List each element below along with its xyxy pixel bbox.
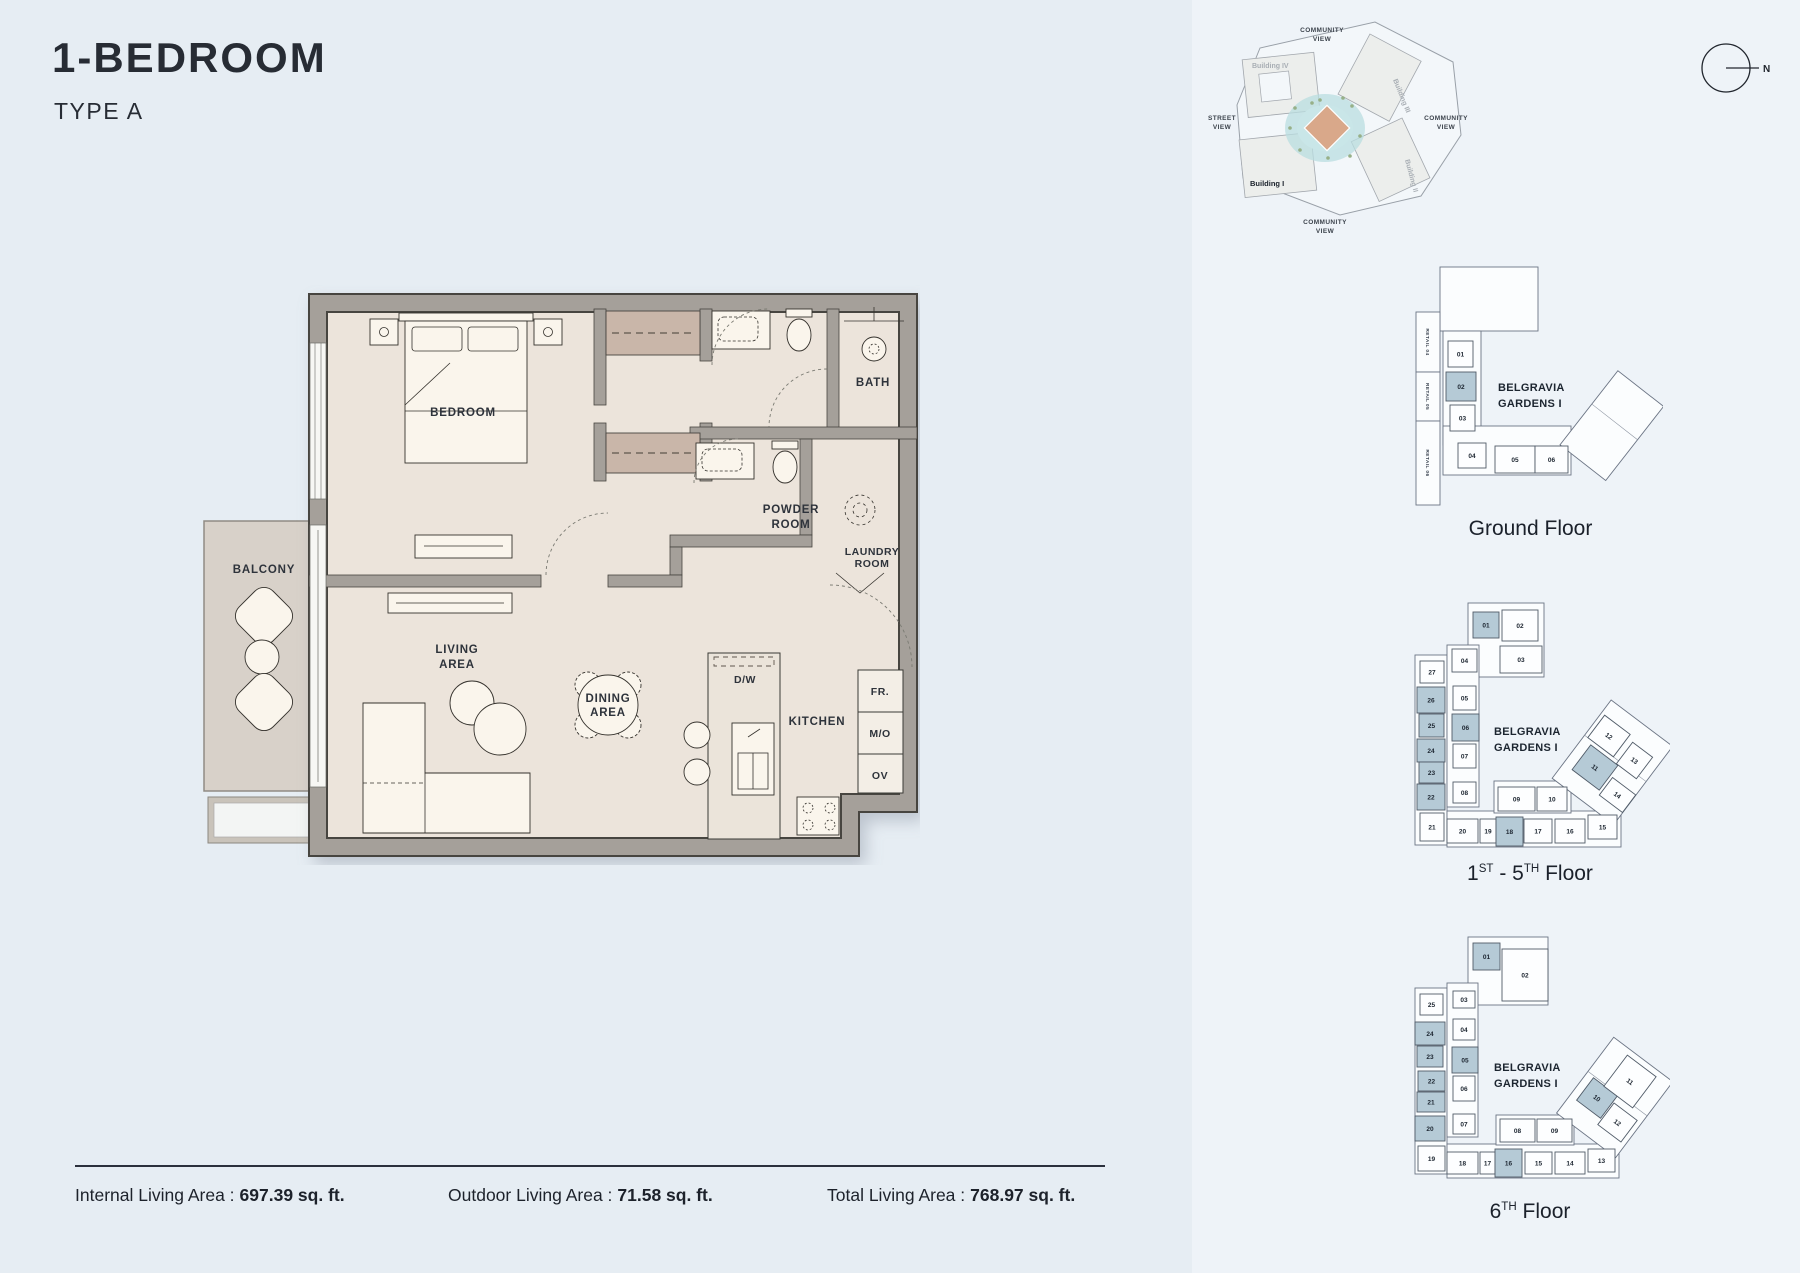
bath-label: BATH xyxy=(856,377,890,389)
keyplan-unit-number: 02 xyxy=(1457,384,1465,391)
internal-area-stat: Internal Living Area :697.39 sq. ft. xyxy=(75,1185,345,1206)
site-plan: Building IV Building III Building II Bui… xyxy=(1200,8,1480,248)
vanity-room-fixtures xyxy=(712,309,812,351)
keyplan-caption-part: TH xyxy=(1524,863,1539,875)
keyplan-1st-5th-caption: 1ST - 5TH Floor xyxy=(1390,862,1670,886)
powder-label-2: ROOM xyxy=(772,519,811,531)
keyplan-ground-caption: Ground Floor xyxy=(1398,517,1663,541)
keyplan-unit-number: 23 xyxy=(1428,770,1436,777)
keyplan-unit-number: 03 xyxy=(1459,415,1467,422)
keyplan-1st-5th-floor: 0102030405060708272625242322212019181716… xyxy=(1390,585,1670,885)
keyplan-caption-part: Floor xyxy=(1539,862,1593,885)
keyplan-unit-number: 25 xyxy=(1428,1002,1436,1009)
windows xyxy=(310,343,326,787)
kitchen-label: KITCHEN xyxy=(789,716,846,728)
keyplan-unit-number: 26 xyxy=(1427,697,1435,704)
keyplan-unit-number: 07 xyxy=(1461,753,1469,760)
keyplan-unit-number: 19 xyxy=(1484,828,1492,835)
media-console xyxy=(388,593,512,613)
laundry-label-2: ROOM xyxy=(855,558,890,570)
keyplan-unit-number: 23 xyxy=(1426,1054,1434,1061)
floorplan: BEDROOM BATH POWDER ROOM LAUNDRY ROOM BA… xyxy=(200,285,920,865)
keyplan-unit-number: 04 xyxy=(1460,1027,1468,1034)
living-label-1: LIVING xyxy=(435,644,478,656)
keyplan-unit-number: 01 xyxy=(1483,954,1491,961)
outdoor-area-value: 71.58 sq. ft. xyxy=(617,1185,712,1205)
keyplan-unit-number: 09 xyxy=(1513,796,1521,803)
keyplan-unit-number: 03 xyxy=(1460,997,1468,1004)
keyplan-unit-number: 06 xyxy=(1548,457,1556,464)
balcony-label: BALCONY xyxy=(233,564,295,576)
oven-label: OV xyxy=(872,770,888,782)
keyplan-unit-number: 08 xyxy=(1514,1128,1522,1135)
community-view-bottom-2: VIEW xyxy=(1316,228,1335,235)
keyplan-unit-number: 02 xyxy=(1521,972,1529,979)
community-view-top-2: VIEW xyxy=(1313,36,1332,43)
keyplan-unit-number: 22 xyxy=(1427,794,1435,801)
keyplan-unit-number: 20 xyxy=(1459,828,1467,835)
compass-north-label: N xyxy=(1763,64,1770,75)
building-i-label: Building I xyxy=(1250,179,1284,188)
keyplan-unit-number: 05 xyxy=(1461,1057,1469,1064)
keyplan-building-name: BELGRAVIA xyxy=(1498,382,1565,394)
keyplan-building-name: BELGRAVIA xyxy=(1494,1062,1561,1074)
street-view-label-2: VIEW xyxy=(1213,124,1232,131)
retail-cell-label: RETAIL 05 xyxy=(1424,383,1430,410)
keyplan-caption-part: 1 xyxy=(1467,862,1479,885)
keyplan-unit-number: 06 xyxy=(1462,725,1470,732)
page-subtitle: TYPE A xyxy=(54,98,144,125)
keyplan-caption-part: 6 xyxy=(1490,1200,1502,1223)
keyplan-unit-number: 15 xyxy=(1599,824,1607,831)
living-label-2: AREA xyxy=(439,659,475,671)
total-area-label: Total Living Area : xyxy=(827,1185,965,1205)
bedroom-label: BEDROOM xyxy=(430,407,496,419)
retail-cell-label: RETAIL 04 xyxy=(1424,328,1430,355)
keyplan-caption-part: Ground Floor xyxy=(1469,517,1593,540)
keyplan-6th-caption: 6TH Floor xyxy=(1390,1200,1670,1224)
keyplan-building-name: GARDENS I xyxy=(1494,742,1558,754)
keyplan-unit-number: 20 xyxy=(1426,1126,1434,1133)
keyplan-unit-number: 05 xyxy=(1461,695,1469,702)
dishwasher-label: D/W xyxy=(734,674,756,686)
page-title: 1-BEDROOM xyxy=(52,34,327,82)
outdoor-area-stat: Outdoor Living Area :71.58 sq. ft. xyxy=(448,1185,713,1206)
keyplan-unit-number: 21 xyxy=(1428,824,1436,831)
keyplan-wing xyxy=(1560,371,1663,481)
dining-label-1: DINING xyxy=(585,693,630,705)
keyplan-unit-number: 22 xyxy=(1428,1078,1436,1085)
building-iv-label: Building IV xyxy=(1252,63,1289,70)
keyplan-unit-number: 05 xyxy=(1511,457,1519,464)
dining-label-2: AREA xyxy=(590,707,626,719)
keyplan-unit-number: 04 xyxy=(1468,453,1476,460)
keyplan-unit-number: 16 xyxy=(1566,828,1574,835)
stove xyxy=(797,797,839,835)
keyplan-caption-part: - 5 xyxy=(1494,862,1524,885)
keyplan-unit-number: 27 xyxy=(1428,669,1436,676)
microwave-label: M/O xyxy=(869,728,890,740)
keyplan-unit-number: 07 xyxy=(1460,1121,1468,1128)
keyplan-unit-number: 18 xyxy=(1506,829,1514,836)
keyplan-unit-number: 17 xyxy=(1484,1160,1492,1167)
keyplan-unit-number: 16 xyxy=(1505,1160,1513,1167)
keyplan-footprint xyxy=(1440,267,1538,331)
keyplan-unit-number: 25 xyxy=(1428,723,1436,730)
central-plaza xyxy=(1285,94,1365,162)
keyplan-unit-number: 01 xyxy=(1482,622,1490,629)
keyplan-unit-number: 01 xyxy=(1457,351,1465,358)
keyplan-unit-number: 09 xyxy=(1551,1128,1559,1135)
keyplan-unit-number: 08 xyxy=(1461,790,1469,797)
community-view-right-1: COMMUNITY xyxy=(1424,115,1468,122)
keyplan-unit-number: 21 xyxy=(1427,1099,1435,1106)
keyplan-building-name: GARDENS I xyxy=(1494,1078,1558,1090)
keyplan-unit-number: 13 xyxy=(1598,1158,1606,1165)
total-area-stat: Total Living Area :768.97 sq. ft. xyxy=(827,1185,1075,1206)
keyplan-6th-floor: 0102030405060725242322212019181716151413… xyxy=(1390,925,1670,1225)
keyplan-caption-part: ST xyxy=(1479,863,1494,875)
keyplan-building-name: BELGRAVIA xyxy=(1494,726,1561,738)
keyplan-unit-number: 24 xyxy=(1426,1031,1434,1038)
total-area-value: 768.97 sq. ft. xyxy=(970,1185,1075,1205)
keyplan-unit-number: 03 xyxy=(1517,657,1525,664)
keyplan-unit-number: 15 xyxy=(1535,1160,1543,1167)
keyplan-unit-number: 14 xyxy=(1566,1160,1574,1167)
community-view-right-2: VIEW xyxy=(1437,124,1456,131)
keyplan-unit-number: 19 xyxy=(1428,1156,1436,1163)
keyplan-unit-number: 04 xyxy=(1461,658,1469,665)
keyplan-unit-number: 02 xyxy=(1516,623,1524,630)
keyplan-unit-number: 10 xyxy=(1548,796,1556,803)
keyplan-building-name: GARDENS I xyxy=(1498,398,1562,410)
keyplan-unit-number: 24 xyxy=(1427,748,1435,755)
keyplan-unit-number: 17 xyxy=(1534,828,1542,835)
brochure-page: { "page": { "title": "1-BEDROOM", "subti… xyxy=(0,0,1800,1273)
keyplan-caption-part: Floor xyxy=(1517,1200,1571,1223)
dining-table xyxy=(575,672,641,738)
stats-divider xyxy=(75,1165,1105,1167)
compass: N xyxy=(1688,35,1783,110)
keyplan-caption-part: TH xyxy=(1501,1201,1516,1213)
laundry-label-1: LAUNDRY xyxy=(845,546,899,558)
keyplan-unit-number: 06 xyxy=(1460,1086,1468,1093)
outdoor-area-label: Outdoor Living Area : xyxy=(448,1185,612,1205)
internal-area-label: Internal Living Area : xyxy=(75,1185,235,1205)
powder-fixtures xyxy=(696,441,798,483)
community-view-bottom-1: COMMUNITY xyxy=(1303,219,1347,226)
internal-area-value: 697.39 sq. ft. xyxy=(240,1185,345,1205)
retail-cell-label: RETAIL 06 xyxy=(1424,449,1430,476)
keyplan-unit-number: 18 xyxy=(1459,1160,1467,1167)
street-view-label-1: STREET xyxy=(1208,115,1236,122)
keyplan-ground-floor: RETAIL 04RETAIL 05RETAIL 06010203040506B… xyxy=(1398,255,1663,515)
fridge-label: FR. xyxy=(871,686,889,698)
powder-label-1: POWDER xyxy=(763,504,820,516)
dresser xyxy=(415,535,512,558)
community-view-top-1: COMMUNITY xyxy=(1300,27,1344,34)
